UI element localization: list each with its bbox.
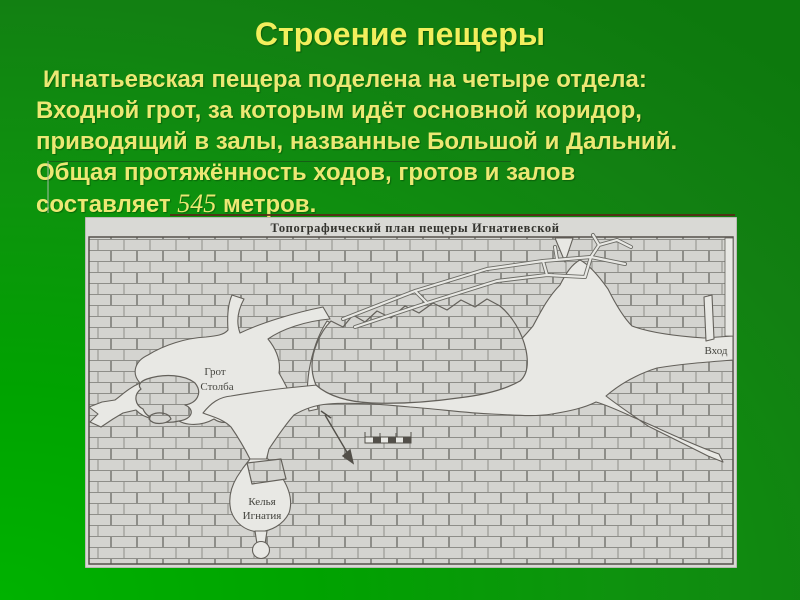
pillar-island-small (149, 413, 171, 424)
dark-underline-artifact (170, 214, 735, 216)
kelya-island (247, 459, 286, 484)
label-grot-stolba: Столба (200, 381, 233, 393)
cave-map-figure: Топографический план пещеры Игнатиевской (85, 217, 737, 568)
label-grot-stolba: Грот (204, 366, 226, 378)
passage-round-chamber (253, 542, 270, 559)
label-kelya-ignatiya: Игнатия (243, 510, 282, 522)
body-line: приводящий в залы, названные Большой и Д… (36, 126, 776, 157)
body-text-segment: составляет (36, 191, 177, 218)
body-text: Игнатьевская пещера поделена на четыре о… (36, 64, 776, 220)
page-title: Строение пещеры (0, 16, 800, 53)
map-title: Топографический план пещеры Игнатиевской (270, 221, 559, 235)
body-line: Входной грот, за которым идёт основной к… (36, 95, 776, 126)
label-kelya-ignatiya: Келья (248, 496, 275, 508)
vertical-line-artifact (47, 161, 49, 213)
label-entrance: Вход (704, 345, 727, 357)
body-line: Игнатьевская пещера поделена на четыре о… (36, 64, 776, 95)
horizontal-line-artifact (48, 161, 511, 162)
slide-background: Строение пещеры Игнатьевская пещера поде… (0, 0, 800, 600)
cave-map-svg: Топографический план пещеры Игнатиевской (85, 217, 737, 568)
passage-right-margin (725, 238, 733, 336)
passage-entrance-wedge (704, 295, 714, 341)
